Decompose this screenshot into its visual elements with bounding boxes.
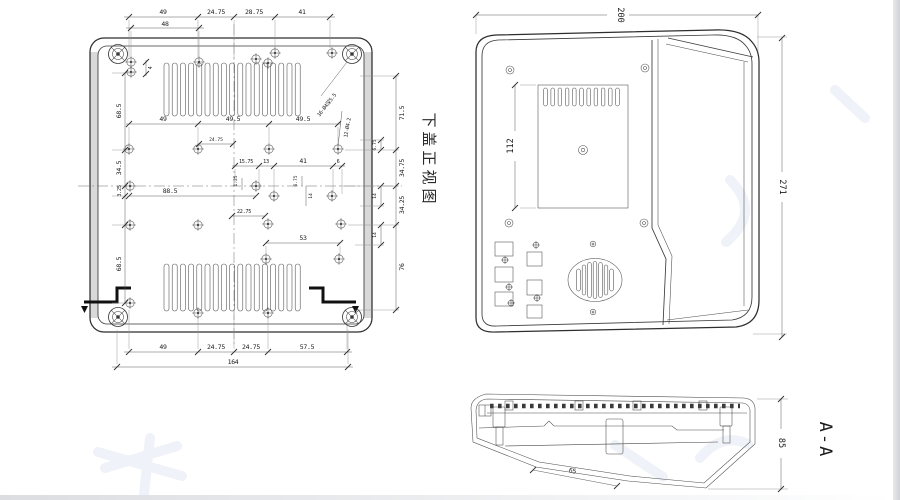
- dim-label: 34.75: [398, 159, 406, 177]
- callout-label: 12-Ø4.2: [342, 117, 352, 138]
- dim-label: 34.5: [115, 160, 123, 175]
- connector-cutouts: [495, 242, 542, 318]
- dim-label: 88.5: [163, 187, 178, 195]
- dim-label: 15.75: [239, 159, 253, 165]
- dim-label: 14: [372, 193, 378, 199]
- dim-label: 48: [161, 20, 169, 28]
- recessed-panel: [538, 85, 628, 208]
- vent-slots-bottom: [164, 264, 300, 311]
- section-arrow-left: [81, 306, 88, 313]
- right-wall-shading: [364, 52, 372, 318]
- vent-slots-top: [164, 63, 300, 116]
- dim-label: 24.75: [207, 343, 225, 351]
- dim-label: 14: [372, 232, 378, 238]
- dim-label: 57.5: [300, 343, 315, 351]
- front-screws: [501, 64, 649, 315]
- dim-label: 24.75: [209, 137, 223, 143]
- dim-label: 68.5: [115, 256, 123, 271]
- section-label: A-A: [815, 422, 835, 459]
- panel-center-screw: [579, 146, 588, 155]
- enclosure-outer-outline: [476, 30, 759, 332]
- dim-label: 68.5: [115, 103, 123, 118]
- dim-label: 271: [777, 179, 787, 194]
- dim-label: 85: [776, 438, 786, 448]
- dim-label: 49: [159, 8, 167, 16]
- dim-label: 24.75: [242, 343, 260, 351]
- dim-label: 49: [159, 343, 167, 351]
- dim-label: 4: [148, 66, 154, 69]
- dim-label: 65: [568, 466, 577, 475]
- dim-label: 49: [159, 115, 167, 123]
- dim-label: 49.5: [296, 115, 311, 123]
- dim-label: 1.25: [233, 175, 239, 186]
- speaker-grille: [568, 259, 622, 302]
- dim-label: 53: [299, 234, 307, 242]
- cover-outer-outline: [90, 38, 372, 332]
- dim-label: 22.75: [237, 209, 251, 215]
- dim-label: 28.75: [245, 8, 263, 16]
- dim-label: 24.75: [207, 8, 225, 16]
- cover-inner-outline: [98, 46, 364, 324]
- section-plane-marks: [81, 288, 359, 313]
- hole-callouts: 16-Ø4深5.5 12-Ø4.2: [315, 62, 353, 146]
- section-view: 85 65 A-A: [471, 394, 835, 492]
- dim-label: 200: [615, 7, 625, 22]
- dim-label: 71.5: [398, 105, 406, 120]
- dim-label: 164: [228, 358, 239, 366]
- cad-drawing-page: 49 24.75 28.75 41 48 4 68.5 34.5 3.25 68…: [0, 0, 900, 500]
- bottom-cover-view: 49 24.75 28.75 41 48 4 68.5 34.5 3.25 68…: [78, 8, 437, 370]
- dim-label: 6: [337, 159, 340, 165]
- dim-label: 34.25: [398, 196, 406, 214]
- dim-label: 41: [298, 8, 306, 16]
- dim-label: 41: [299, 157, 307, 165]
- dim-label: 13: [263, 159, 269, 165]
- page-edge-right: [893, 0, 900, 500]
- left-wall-shading: [90, 52, 98, 318]
- dim-label: 112: [506, 138, 516, 153]
- panel-vent-slots: [544, 88, 620, 106]
- dim-label: 3.25: [117, 185, 123, 196]
- dim-label: 49.5: [226, 115, 241, 123]
- page-edge-bottom: [0, 495, 893, 500]
- dim-label: 14: [308, 193, 314, 199]
- dim-label: 6.75: [293, 175, 299, 186]
- enclosure-inner-outline: [482, 35, 752, 326]
- dim-label: 6.75: [372, 139, 378, 150]
- callout-label: 16-Ø4深5.5: [315, 91, 338, 118]
- front-view-dimensions: 200 271 112: [473, 7, 787, 340]
- dim-label: 76: [398, 263, 406, 271]
- front-view: 200 271 112: [473, 7, 787, 340]
- engineering-drawing: 49 24.75 28.75 41 48 4 68.5 34.5 3.25 68…: [0, 0, 900, 500]
- view-title: 下盖正视图: [420, 112, 437, 207]
